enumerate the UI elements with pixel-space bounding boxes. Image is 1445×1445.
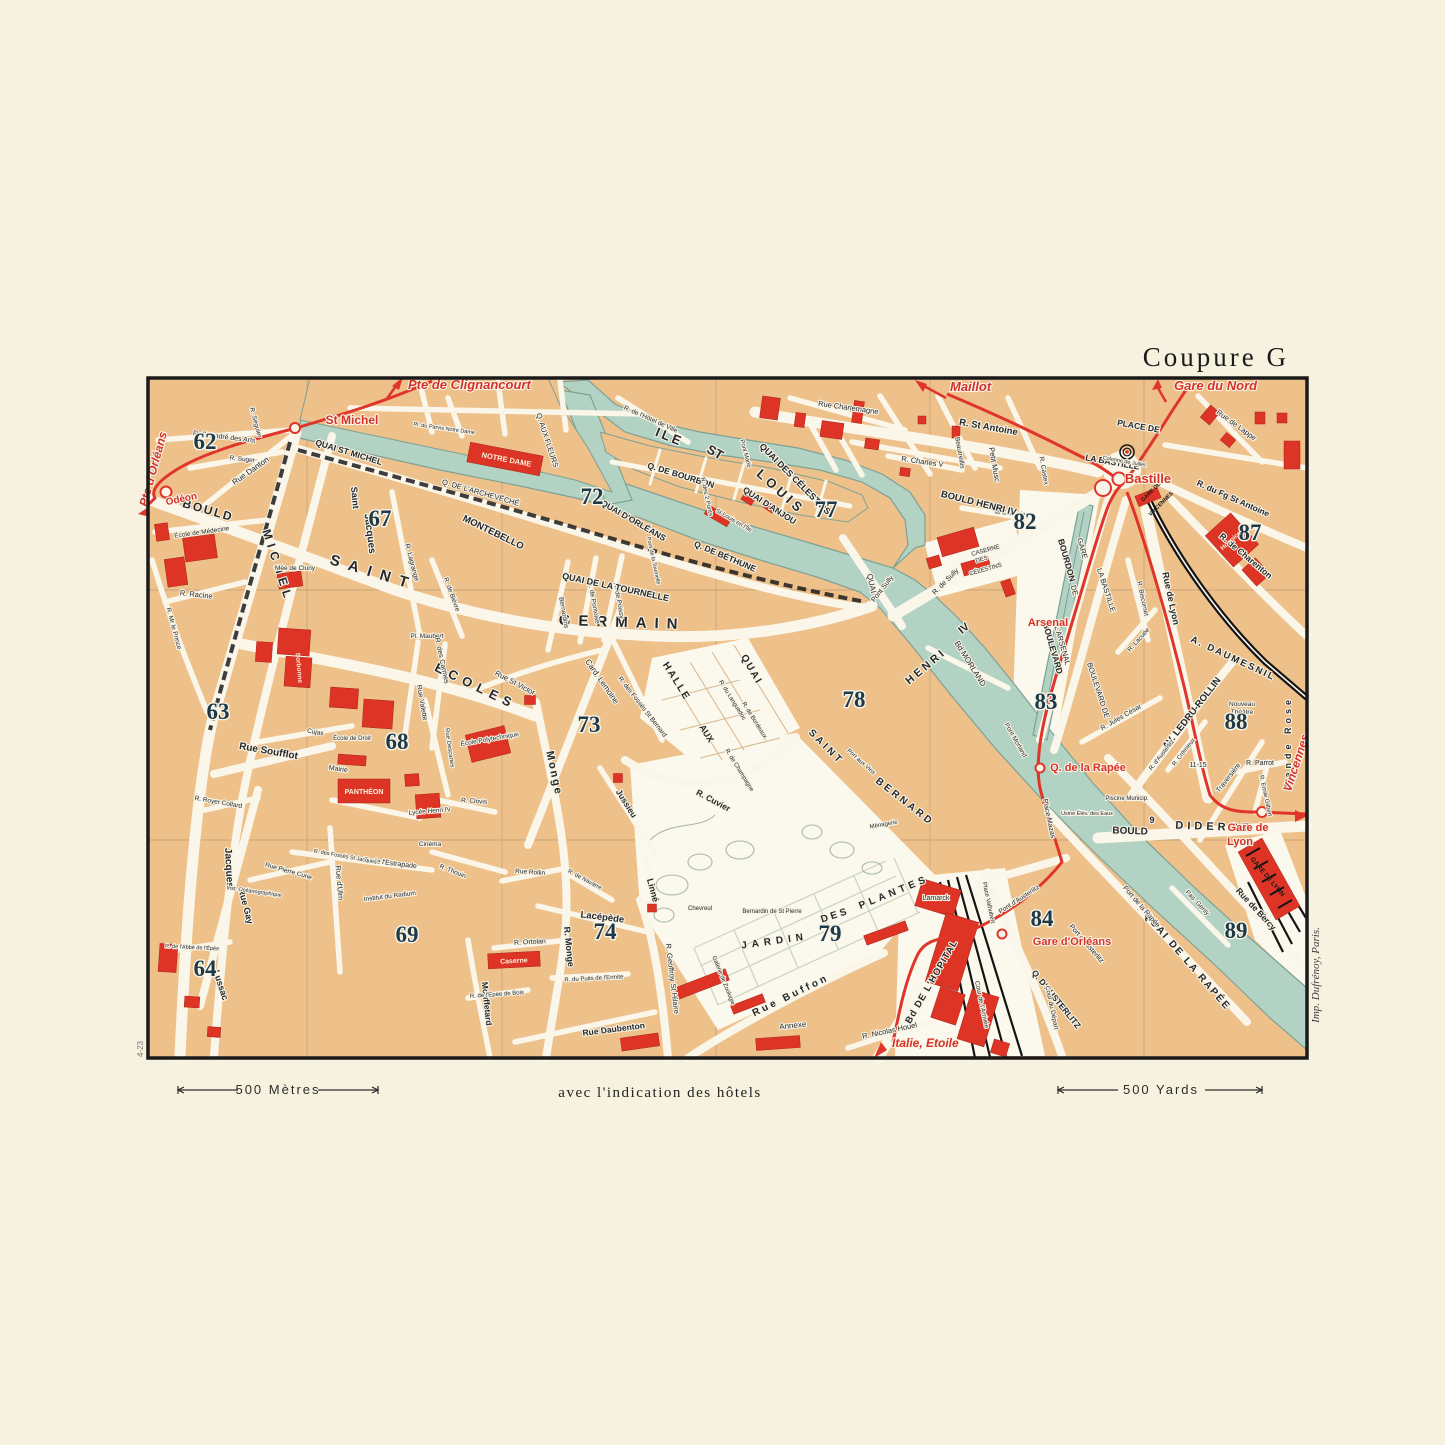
scale-yards-label: 500 Yards <box>1123 1082 1199 1097</box>
metro-station-label: Bastille <box>1125 471 1171 486</box>
street-label: Jacques <box>222 848 235 889</box>
metro-station-label: Arsenal <box>1028 617 1068 629</box>
sector-number: 79 <box>819 921 842 946</box>
sector-number: 63 <box>207 699 230 724</box>
paris-map-plate: Coupure G <box>0 0 1445 1445</box>
sector-number: 67 <box>369 506 392 531</box>
sector-number: 88 <box>1225 709 1248 734</box>
street-label: Saint <box>349 486 361 509</box>
map-canvas: BOULDMICHELSAINTGERMAINÉCOLESSaintJacque… <box>136 377 1312 1058</box>
street-label: Mée de Cluny <box>275 565 316 572</box>
sector-number: 74 <box>594 919 618 944</box>
sector-number: 64 <box>194 956 218 981</box>
metro-station-label: St Michel <box>326 413 379 427</box>
street-label: 11-15 <box>1189 762 1206 769</box>
metro-destination-label: Gare du Nord <box>1174 378 1258 393</box>
map-caption: avec l'indication des hôtels <box>558 1085 761 1101</box>
station-st-michel <box>290 423 300 433</box>
street-label: Nouveau <box>1229 701 1255 708</box>
metro-destination-label: Maillot <box>950 379 992 394</box>
building-label: Caserne <box>500 957 528 965</box>
metro-station-label: Gare de <box>1228 822 1269 834</box>
station-bastille-b <box>1113 473 1126 486</box>
station-bastille-a <box>1095 480 1111 496</box>
sector-number: 68 <box>386 729 409 754</box>
station-rapee <box>1036 764 1045 773</box>
street-label: École de Droit <box>333 735 371 742</box>
station-gare-orleans <box>998 930 1007 939</box>
scale-metres-label: 500 Mètres <box>235 1082 320 1097</box>
metro-station-label: Gare d'Orléans <box>1033 936 1111 948</box>
street-label: BOULD <box>1112 825 1148 837</box>
sector-number: 72 <box>581 484 604 509</box>
street-label: 9 <box>1149 815 1154 825</box>
street-label: Piscine Municip. <box>1105 796 1149 802</box>
sorbonne-building <box>277 628 311 656</box>
street-label: Bernardin de St Pierre <box>742 909 802 915</box>
printer-imprint: Imp. Dufrénoy, Paris. <box>1310 927 1322 1024</box>
sector-number: 62 <box>194 429 217 454</box>
street-label: R. Parrot <box>1246 760 1274 767</box>
sector-number: 73 <box>578 712 601 737</box>
street-label: Usine Élév. des Eaux <box>1061 810 1113 817</box>
metro-destination-label: Italie, Etoile <box>892 1036 959 1050</box>
sector-number: 82 <box>1014 509 1037 534</box>
plate-code: 4-23 <box>136 1040 145 1057</box>
sector-number: 89 <box>1225 918 1248 943</box>
street-label: Cinéma <box>419 841 442 848</box>
street-label: Lamarck <box>923 895 950 902</box>
building-label: PANTHÉON <box>345 787 384 796</box>
metro-station-label: Lyon <box>1227 836 1253 848</box>
sector-number: 78 <box>843 687 866 712</box>
map-plate-page: Coupure G <box>0 0 1445 1445</box>
metro-station-label: Q. de la Rapée <box>1050 762 1126 774</box>
street-label: Chevreul <box>688 906 712 912</box>
sector-number: 87 <box>1239 520 1262 545</box>
sector-number: 69 <box>396 922 419 947</box>
sector-number: 84 <box>1031 906 1055 931</box>
sector-number: 83 <box>1035 689 1058 714</box>
sector-number: 77 <box>815 497 838 522</box>
plate-title: Coupure G <box>1143 342 1289 372</box>
